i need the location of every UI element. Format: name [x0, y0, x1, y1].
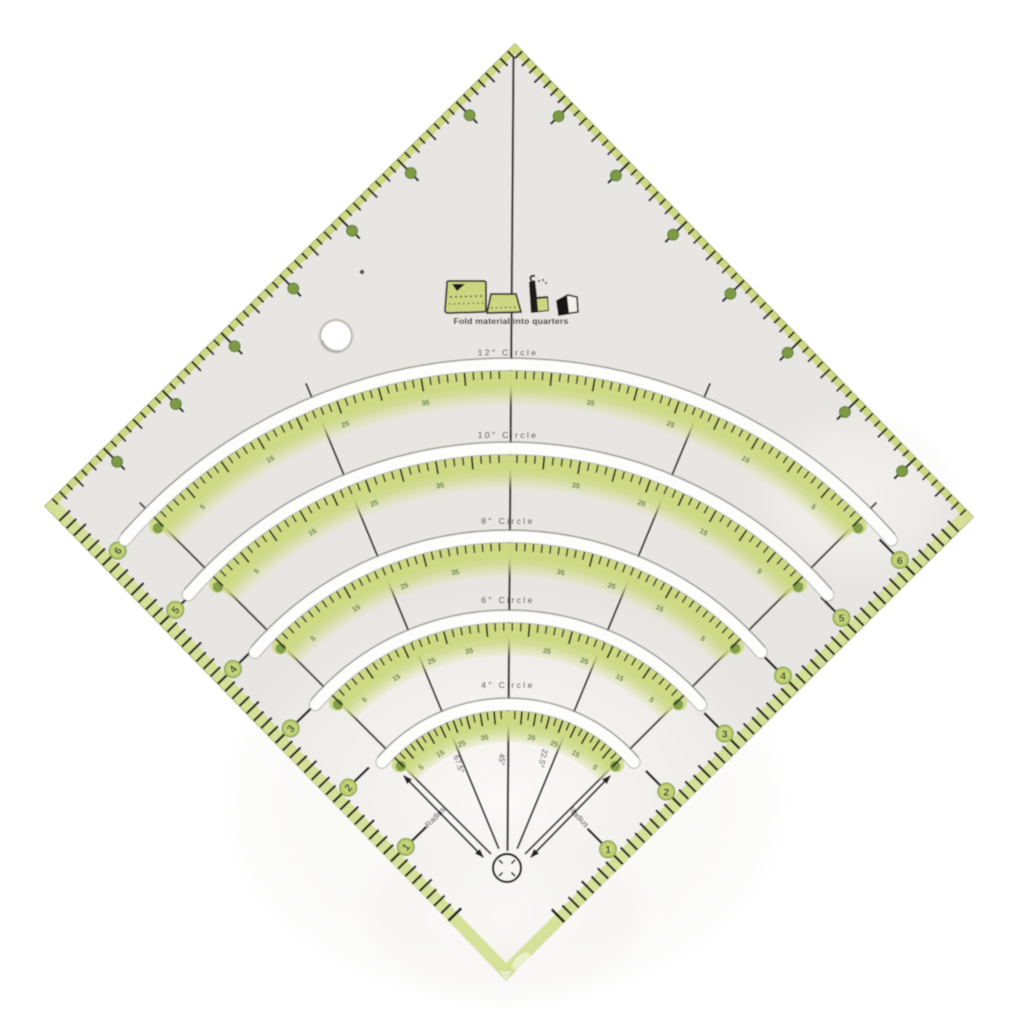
svg-text:2: 2 — [663, 786, 669, 798]
svg-text:35: 35 — [527, 732, 536, 742]
svg-text:12″ Circle: 12″ Circle — [478, 348, 539, 358]
svg-text:6: 6 — [897, 555, 903, 567]
svg-text:10″ Circle: 10″ Circle — [478, 430, 539, 440]
svg-text:35: 35 — [464, 646, 473, 656]
svg-text:35: 35 — [421, 398, 430, 408]
svg-text:8″ Circle: 8″ Circle — [481, 516, 534, 526]
svg-text:35: 35 — [586, 398, 595, 408]
svg-text:5: 5 — [839, 613, 845, 625]
svg-text:45°: 45° — [497, 753, 506, 765]
svg-text:35: 35 — [556, 567, 565, 577]
svg-text:35: 35 — [571, 480, 580, 490]
svg-text:4: 4 — [780, 671, 786, 683]
svg-text:1: 1 — [605, 844, 611, 856]
svg-text:Fold material into quarters: Fold material into quarters — [454, 316, 569, 326]
svg-text:6″ Circle: 6″ Circle — [481, 595, 534, 605]
svg-text:35: 35 — [435, 480, 444, 490]
svg-text:35: 35 — [542, 646, 551, 656]
svg-text:35: 35 — [480, 732, 489, 742]
svg-text:3: 3 — [722, 728, 728, 740]
svg-text:4″ Circle: 4″ Circle — [481, 680, 534, 690]
svg-text:35: 35 — [451, 567, 460, 577]
